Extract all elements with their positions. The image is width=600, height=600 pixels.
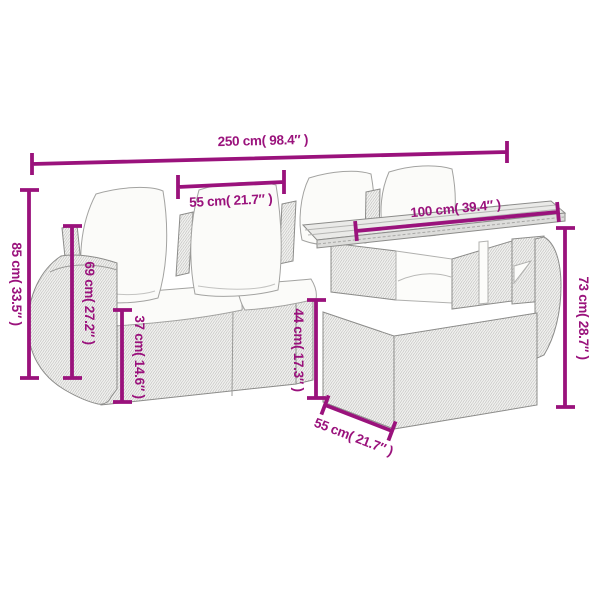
label-table-height: 73 cm( 28.7″ ) xyxy=(576,276,591,359)
table-base-left-face xyxy=(323,312,394,429)
dimension-line xyxy=(556,228,575,407)
label-side-height: 44 cm( 17.3″ ) xyxy=(291,308,306,391)
furniture-dimension-diagram: 250 cm( 98.4″ ) 55 cm( 21.7″ ) 100 cm( 3… xyxy=(0,0,600,600)
table-post-gap xyxy=(479,241,488,304)
table-opening xyxy=(396,251,452,303)
table-fan-right xyxy=(535,237,561,359)
dimension-table-height xyxy=(556,228,575,407)
label-overall-height: 85 cm( 33.5″ ) xyxy=(9,242,24,325)
table-base-front-face xyxy=(394,313,537,429)
label-back-height: 69 cm( 27.2″ ) xyxy=(82,261,97,344)
table-leg-panel-left xyxy=(331,243,396,300)
label-overall-width: 250 cm( 98.4″ ) xyxy=(217,132,308,149)
label-seat-height: 37 cm( 14.6″ ) xyxy=(132,315,147,398)
diagram-svg: 250 cm( 98.4″ ) 55 cm( 21.7″ ) 100 cm( 3… xyxy=(0,0,600,600)
